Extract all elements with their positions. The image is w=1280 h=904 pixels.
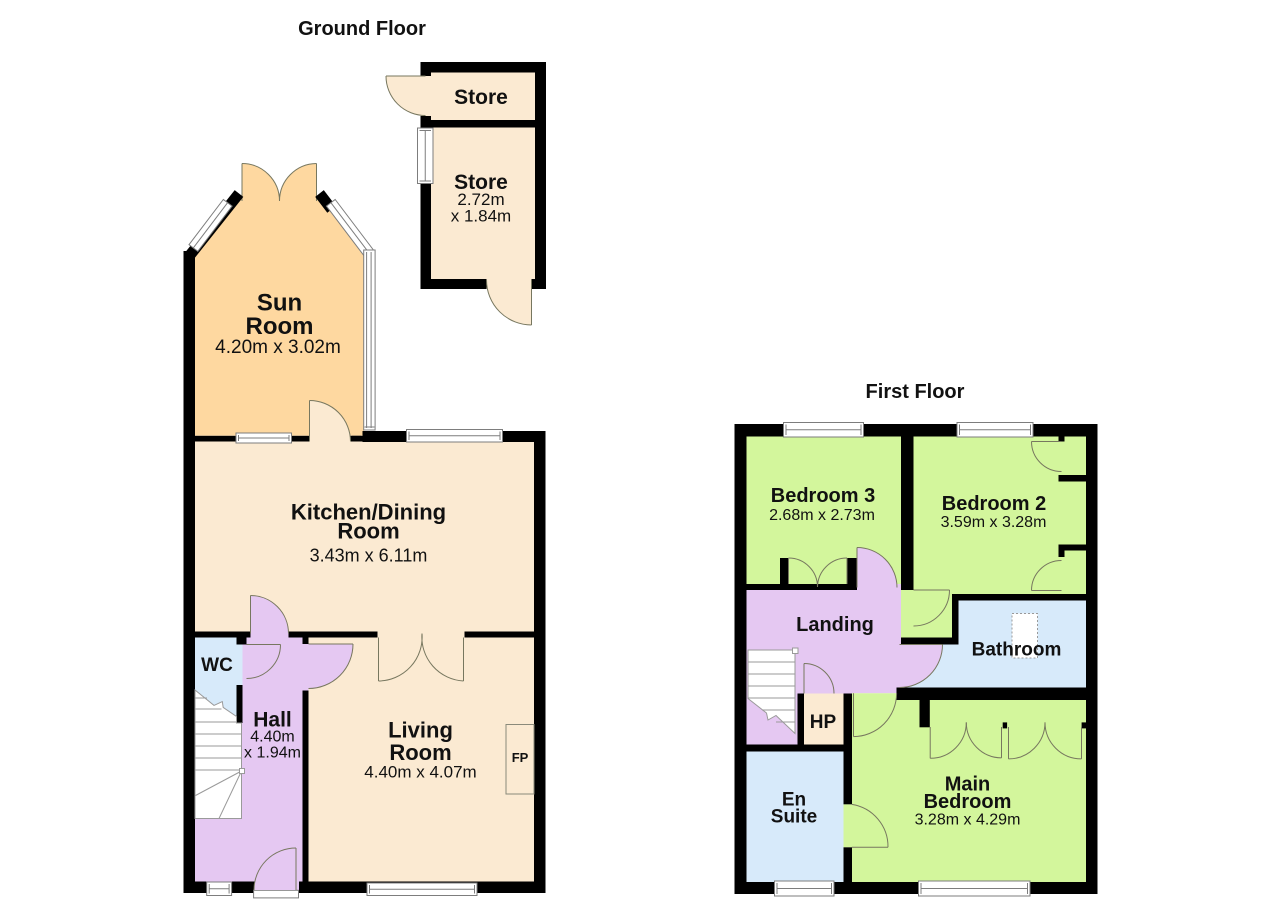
svg-text:Room: Room: [246, 313, 314, 340]
svg-text:Living: Living: [388, 718, 453, 743]
svg-text:Bedroom 3: Bedroom 3: [771, 485, 875, 507]
svg-text:Suite: Suite: [771, 807, 817, 828]
svg-text:Landing: Landing: [796, 614, 874, 636]
svg-text:4.40m: 4.40m: [250, 729, 294, 746]
svg-text:Bedroom 2: Bedroom 2: [942, 493, 1046, 515]
svg-text:3.43m x 6.11m: 3.43m x 6.11m: [310, 546, 428, 566]
svg-text:4.40m x 4.07m: 4.40m x 4.07m: [364, 763, 476, 782]
svg-text:Bathroom: Bathroom: [972, 640, 1062, 661]
svg-text:3.28m x 4.29m: 3.28m x 4.29m: [915, 812, 1021, 829]
svg-text:Ground Floor: Ground Floor: [298, 18, 426, 40]
svg-text:WC: WC: [201, 655, 233, 676]
svg-text:x 1.94m: x 1.94m: [244, 745, 301, 762]
svg-text:Room: Room: [337, 519, 399, 544]
svg-text:First Floor: First Floor: [866, 381, 965, 403]
svg-text:HP: HP: [810, 712, 837, 733]
svg-text:Bedroom: Bedroom: [924, 791, 1012, 813]
svg-text:4.20m x 3.02m: 4.20m x 3.02m: [215, 337, 341, 358]
svg-text:Store: Store: [454, 86, 508, 109]
svg-text:2.68m x 2.73m: 2.68m x 2.73m: [769, 507, 875, 524]
svg-text:x 1.84m: x 1.84m: [451, 206, 511, 225]
svg-text:FP: FP: [512, 750, 529, 765]
svg-text:Room: Room: [389, 740, 451, 765]
svg-text:3.59m x 3.28m: 3.59m x 3.28m: [941, 514, 1047, 531]
